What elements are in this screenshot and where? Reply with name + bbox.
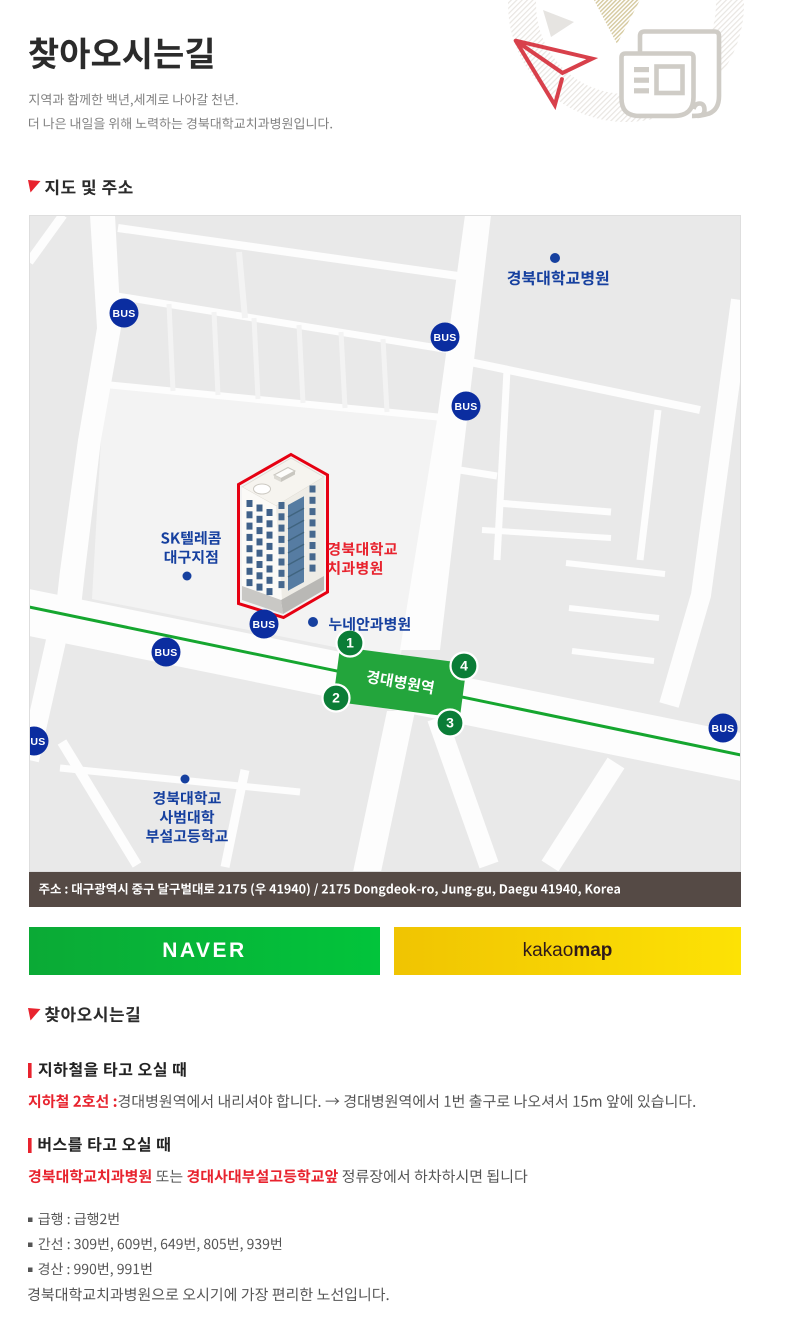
svg-text:2: 2 <box>332 690 340 706</box>
svg-text:BUS: BUS <box>112 308 135 320</box>
svg-text:BUS: BUS <box>252 619 275 631</box>
svg-text:1: 1 <box>346 635 354 651</box>
svg-text:BUS: BUS <box>711 723 734 735</box>
svg-text:BUS: BUS <box>154 647 177 659</box>
svg-text:4: 4 <box>460 658 468 674</box>
svg-text:BUS: BUS <box>433 332 456 344</box>
svg-text:3: 3 <box>446 715 454 731</box>
svg-text:BUS: BUS <box>454 401 477 413</box>
svg-text:BUS: BUS <box>29 736 46 748</box>
